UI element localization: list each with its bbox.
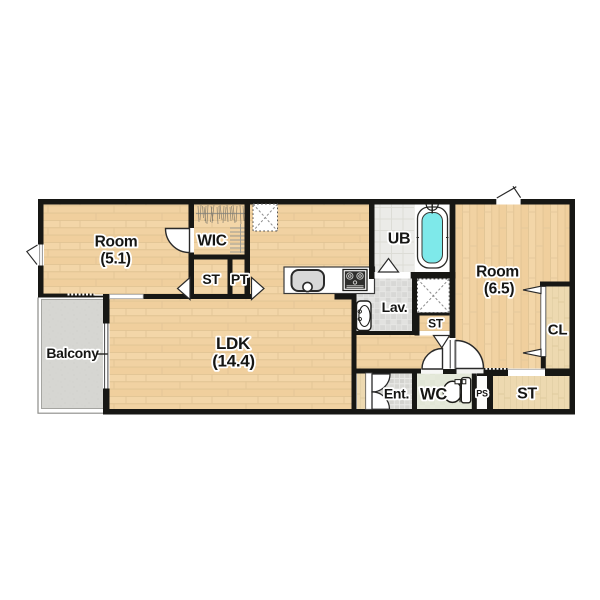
svg-text:Room: Room: [95, 234, 138, 251]
svg-text:(6.5): (6.5): [484, 281, 515, 298]
svg-text:Balcony: Balcony: [46, 345, 99, 361]
svg-text:UB: UB: [388, 231, 411, 248]
svg-text:PT: PT: [231, 271, 249, 287]
svg-text:ST: ST: [517, 386, 537, 403]
svg-text:WC: WC: [420, 386, 447, 404]
svg-text:LDK: LDK: [216, 334, 251, 353]
svg-text:CL: CL: [548, 322, 568, 339]
svg-text:(14.4): (14.4): [212, 352, 255, 371]
svg-text:PS: PS: [476, 389, 488, 399]
svg-text:ST: ST: [202, 271, 220, 287]
svg-text:Room: Room: [476, 264, 519, 281]
svg-text:Lav.: Lav.: [382, 299, 408, 315]
svg-text:Ent.: Ent.: [384, 386, 409, 402]
svg-text:ST: ST: [428, 317, 444, 331]
svg-text:WIC: WIC: [197, 233, 226, 250]
svg-text:(5.1): (5.1): [100, 251, 131, 268]
